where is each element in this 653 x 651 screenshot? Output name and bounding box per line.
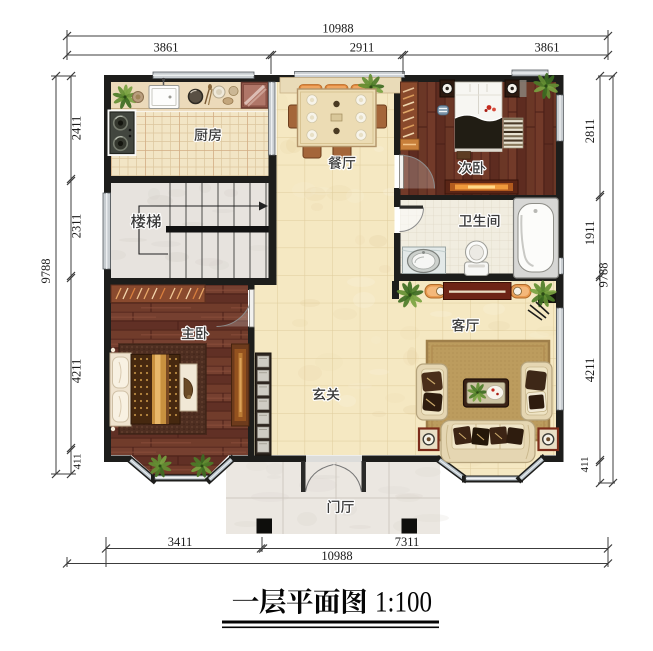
- svg-text:2811: 2811: [583, 119, 597, 144]
- svg-text:2311: 2311: [70, 214, 84, 239]
- svg-text:3411: 3411: [168, 535, 193, 549]
- svg-text:411: 411: [72, 453, 84, 469]
- svg-text:1:100: 1:100: [375, 586, 432, 619]
- svg-text:10988: 10988: [322, 22, 353, 36]
- svg-text:9788: 9788: [597, 263, 611, 288]
- svg-text:3861: 3861: [154, 41, 179, 55]
- svg-text:4211: 4211: [70, 359, 84, 384]
- svg-text:2911: 2911: [350, 41, 375, 55]
- svg-text:4211: 4211: [583, 358, 597, 383]
- svg-text:2411: 2411: [70, 116, 84, 141]
- svg-text:9788: 9788: [39, 259, 53, 284]
- svg-text:10988: 10988: [321, 549, 352, 563]
- svg-text:7311: 7311: [395, 535, 420, 549]
- svg-text:411: 411: [579, 456, 591, 472]
- svg-text:1911: 1911: [583, 221, 597, 246]
- svg-text:3861: 3861: [535, 41, 560, 55]
